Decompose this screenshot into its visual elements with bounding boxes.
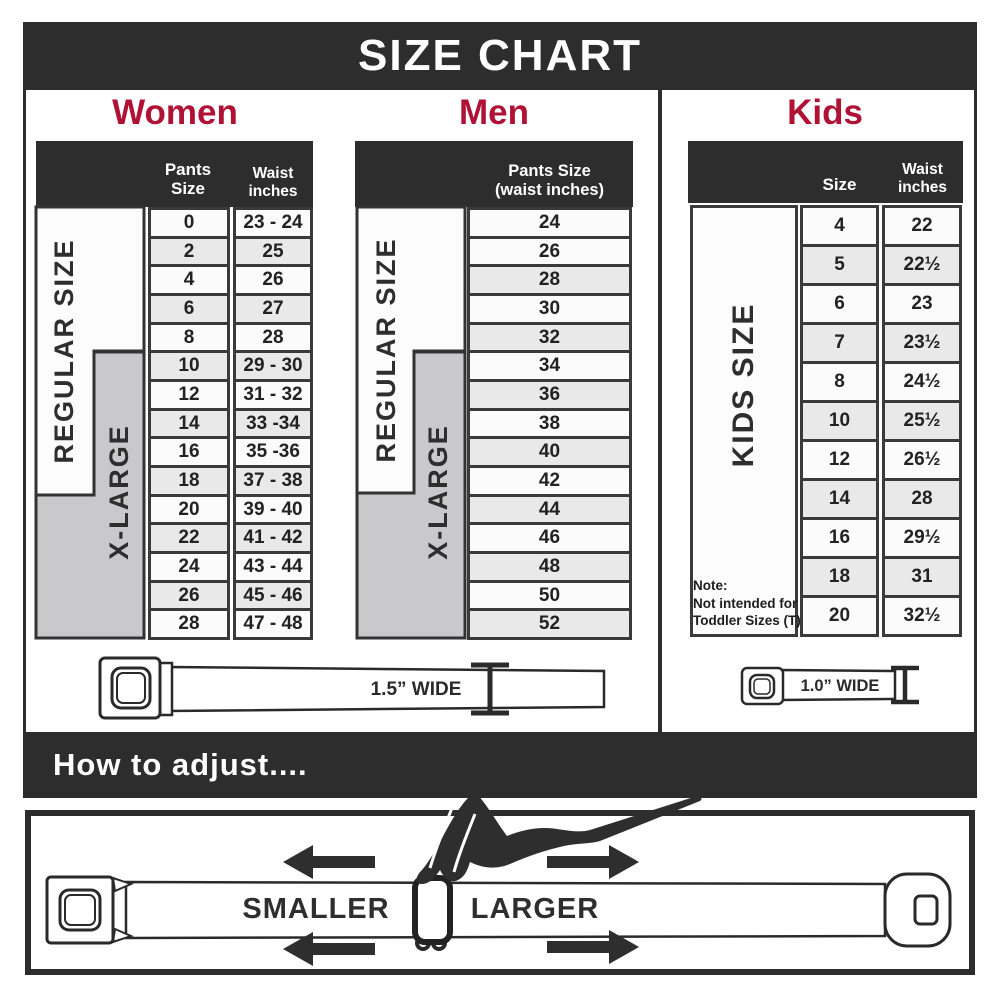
women-pants-size-cell: 20 bbox=[148, 494, 230, 526]
right-border bbox=[974, 90, 977, 733]
kids-waist-cell: 25½ bbox=[882, 400, 962, 442]
women-table-header: Pants Size Waist inches bbox=[36, 141, 313, 207]
larger-label: LARGER bbox=[450, 893, 620, 926]
women-pants-size-cell: 18 bbox=[148, 465, 230, 497]
kids-waist-cell: 23 bbox=[882, 283, 962, 325]
men-col-header: Pants Size (waist inches) bbox=[467, 162, 632, 200]
women-col-pants-size: Pants Size bbox=[146, 160, 230, 199]
kids-size-cell: 20 bbox=[800, 595, 879, 637]
smaller-label: SMALLER bbox=[231, 893, 401, 926]
women-waist-cell: 26 bbox=[233, 264, 313, 296]
men-xlarge-label: X-LARGE bbox=[412, 347, 464, 637]
men-pants-size-cell: 28 bbox=[467, 264, 632, 296]
kids-note-line3: Toddler Sizes (T) bbox=[693, 612, 801, 630]
kids-heading: Kids bbox=[725, 93, 925, 133]
women-pants-size-cell: 16 bbox=[148, 436, 230, 468]
kids-note-line2: Not intended for bbox=[693, 595, 801, 613]
women-pants-size-cell: 10 bbox=[148, 350, 230, 382]
kids-waist-cell: 32½ bbox=[882, 595, 962, 637]
left-border bbox=[23, 90, 26, 733]
women-waist-cell: 23 - 24 bbox=[233, 207, 313, 239]
kids-size-cell: 10 bbox=[800, 400, 879, 442]
belt-tip-hole bbox=[915, 896, 937, 924]
women-waist-cell: 35 -36 bbox=[233, 436, 313, 468]
women-pants-size-cell: 26 bbox=[148, 580, 230, 612]
adult-buckle-inner2 bbox=[117, 673, 145, 703]
men-pants-size-cell: 44 bbox=[467, 494, 632, 526]
kids-note-line1: Note: bbox=[693, 577, 801, 595]
women-col-waist-line1: Waist bbox=[232, 165, 314, 183]
women-waist-cell: 45 - 46 bbox=[233, 580, 313, 612]
men-col-header-line1: Pants Size bbox=[467, 162, 632, 181]
kids-divider bbox=[658, 90, 662, 733]
kids-waist-column: 2222½2323½24½25½26½2829½3132½ bbox=[882, 205, 962, 637]
kids-note: Note: Not intended for Toddler Sizes (T) bbox=[693, 577, 801, 630]
women-waist-cell: 43 - 44 bbox=[233, 551, 313, 583]
men-regular-size-label: REGULAR SIZE bbox=[357, 205, 415, 495]
kids-waist-cell: 22 bbox=[882, 205, 962, 247]
size-chart-banner: SIZE CHART bbox=[23, 22, 977, 90]
kids-waist-cell: 24½ bbox=[882, 361, 962, 403]
men-pants-size-cell: 36 bbox=[467, 379, 632, 411]
women-waist-cell: 31 - 32 bbox=[233, 379, 313, 411]
kids-buckle-inner2 bbox=[754, 679, 770, 694]
women-xlarge-label: X-LARGE bbox=[93, 347, 145, 637]
women-pants-size-cell: 8 bbox=[148, 322, 230, 354]
size-chart-page: SIZE CHART Women Men Kids Pants Size Wai… bbox=[0, 0, 1000, 1000]
women-pants-size-cell: 22 bbox=[148, 522, 230, 554]
women-pants-size-cell: 4 bbox=[148, 264, 230, 296]
men-pants-size-cell: 48 bbox=[467, 551, 632, 583]
kids-col-waist-line2: inches bbox=[882, 179, 963, 197]
hand-illustration bbox=[380, 788, 720, 888]
men-pants-size-cell: 42 bbox=[467, 465, 632, 497]
kids-size-column: 45678101214161820 bbox=[800, 205, 879, 637]
kids-waist-cell: 28 bbox=[882, 478, 962, 520]
women-pants-size-cell: 12 bbox=[148, 379, 230, 411]
kids-waist-cell: 29½ bbox=[882, 517, 962, 559]
women-waist-cell: 27 bbox=[233, 293, 313, 325]
hand-silhouette bbox=[416, 794, 701, 884]
arrow-left-top-icon bbox=[283, 845, 375, 879]
women-waist-column: 23 - 242526272829 - 3031 - 3233 -3435 -3… bbox=[233, 207, 313, 640]
kids-size-label: KIDS SIZE bbox=[714, 215, 774, 555]
men-pants-size-cell: 30 bbox=[467, 293, 632, 325]
women-col-waist-line2: inches bbox=[232, 183, 314, 201]
men-pants-size-cell: 50 bbox=[467, 580, 632, 612]
men-pants-size-cell: 34 bbox=[467, 350, 632, 382]
women-waist-cell: 37 - 38 bbox=[233, 465, 313, 497]
women-pants-size-cell: 2 bbox=[148, 236, 230, 268]
kids-size-cell: 12 bbox=[800, 439, 879, 481]
women-waist-cell: 29 - 30 bbox=[233, 350, 313, 382]
women-heading: Women bbox=[75, 93, 275, 133]
women-waist-cell: 39 - 40 bbox=[233, 494, 313, 526]
page-title: SIZE CHART bbox=[358, 31, 642, 81]
kids-col-waist-line1: Waist bbox=[882, 161, 963, 179]
adult-belt-width-label: 1.5” WIDE bbox=[341, 679, 491, 701]
kids-waist-cell: 23½ bbox=[882, 322, 962, 364]
women-waist-cell: 41 - 42 bbox=[233, 522, 313, 554]
kids-size-cell: 5 bbox=[800, 244, 879, 286]
men-col-header-line2: (waist inches) bbox=[467, 181, 632, 200]
kids-waist-cell: 31 bbox=[882, 556, 962, 598]
women-waist-cell: 25 bbox=[233, 236, 313, 268]
kids-belt-width-label: 1.0” WIDE bbox=[770, 677, 910, 696]
men-pants-size-cell: 24 bbox=[467, 207, 632, 239]
men-heading: Men bbox=[394, 93, 594, 133]
women-pants-size-cell: 28 bbox=[148, 608, 230, 640]
women-waist-cell: 28 bbox=[233, 322, 313, 354]
how-to-adjust-heading: How to adjust.... bbox=[53, 747, 308, 783]
adjust-buckle-inner2 bbox=[65, 895, 95, 925]
kids-size-cell: 6 bbox=[800, 283, 879, 325]
men-pants-size-column: 242628303234363840424446485052 bbox=[467, 207, 632, 640]
men-pants-size-cell: 38 bbox=[467, 408, 632, 440]
kids-size-cell: 18 bbox=[800, 556, 879, 598]
men-pants-size-cell: 52 bbox=[467, 608, 632, 640]
men-pants-size-cell: 26 bbox=[467, 236, 632, 268]
men-pants-size-cell: 32 bbox=[467, 322, 632, 354]
kids-size-cell: 7 bbox=[800, 322, 879, 364]
men-pants-size-cell: 40 bbox=[467, 436, 632, 468]
women-pants-size-cell: 6 bbox=[148, 293, 230, 325]
women-pants-size-column: 0246810121416182022242628 bbox=[148, 207, 230, 640]
men-pants-size-cell: 46 bbox=[467, 522, 632, 554]
kids-waist-cell: 26½ bbox=[882, 439, 962, 481]
kids-col-waist: Waist inches bbox=[882, 161, 963, 197]
kids-size-cell: 4 bbox=[800, 205, 879, 247]
kids-col-size: Size bbox=[800, 175, 879, 195]
women-col-waist: Waist inches bbox=[232, 165, 314, 201]
kids-size-cell: 8 bbox=[800, 361, 879, 403]
women-pants-size-cell: 14 bbox=[148, 408, 230, 440]
kids-size-cell: 14 bbox=[800, 478, 879, 520]
women-regular-size-label: REGULAR SIZE bbox=[35, 206, 93, 496]
men-table-header: Pants Size (waist inches) bbox=[355, 141, 633, 207]
kids-waist-cell: 22½ bbox=[882, 244, 962, 286]
women-pants-size-cell: 0 bbox=[148, 207, 230, 239]
women-pants-size-cell: 24 bbox=[148, 551, 230, 583]
kids-table-header: Size Waist inches bbox=[688, 141, 963, 203]
women-waist-cell: 47 - 48 bbox=[233, 608, 313, 640]
kids-size-cell: 16 bbox=[800, 517, 879, 559]
women-waist-cell: 33 -34 bbox=[233, 408, 313, 440]
